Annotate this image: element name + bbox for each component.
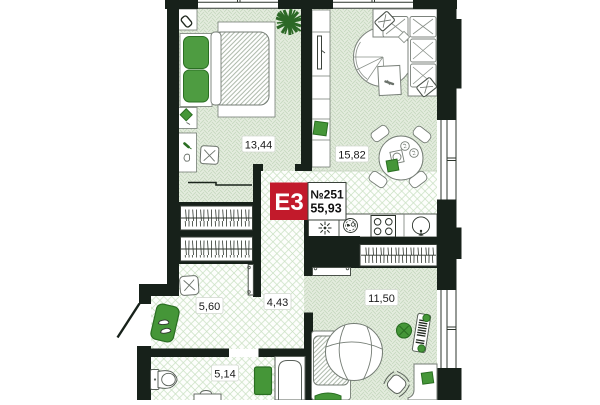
svg-text:5,14: 5,14 <box>214 369 235 381</box>
svg-text:5,60: 5,60 <box>199 301 220 313</box>
svg-text:№251: №251 <box>310 188 344 202</box>
svg-text:4,43: 4,43 <box>267 297 288 309</box>
svg-text:13,44: 13,44 <box>245 140 273 152</box>
svg-text:11,50: 11,50 <box>368 293 395 305</box>
svg-text:15,82: 15,82 <box>338 150 366 162</box>
svg-text:E3: E3 <box>274 189 303 216</box>
svg-text:55,93: 55,93 <box>310 202 341 216</box>
